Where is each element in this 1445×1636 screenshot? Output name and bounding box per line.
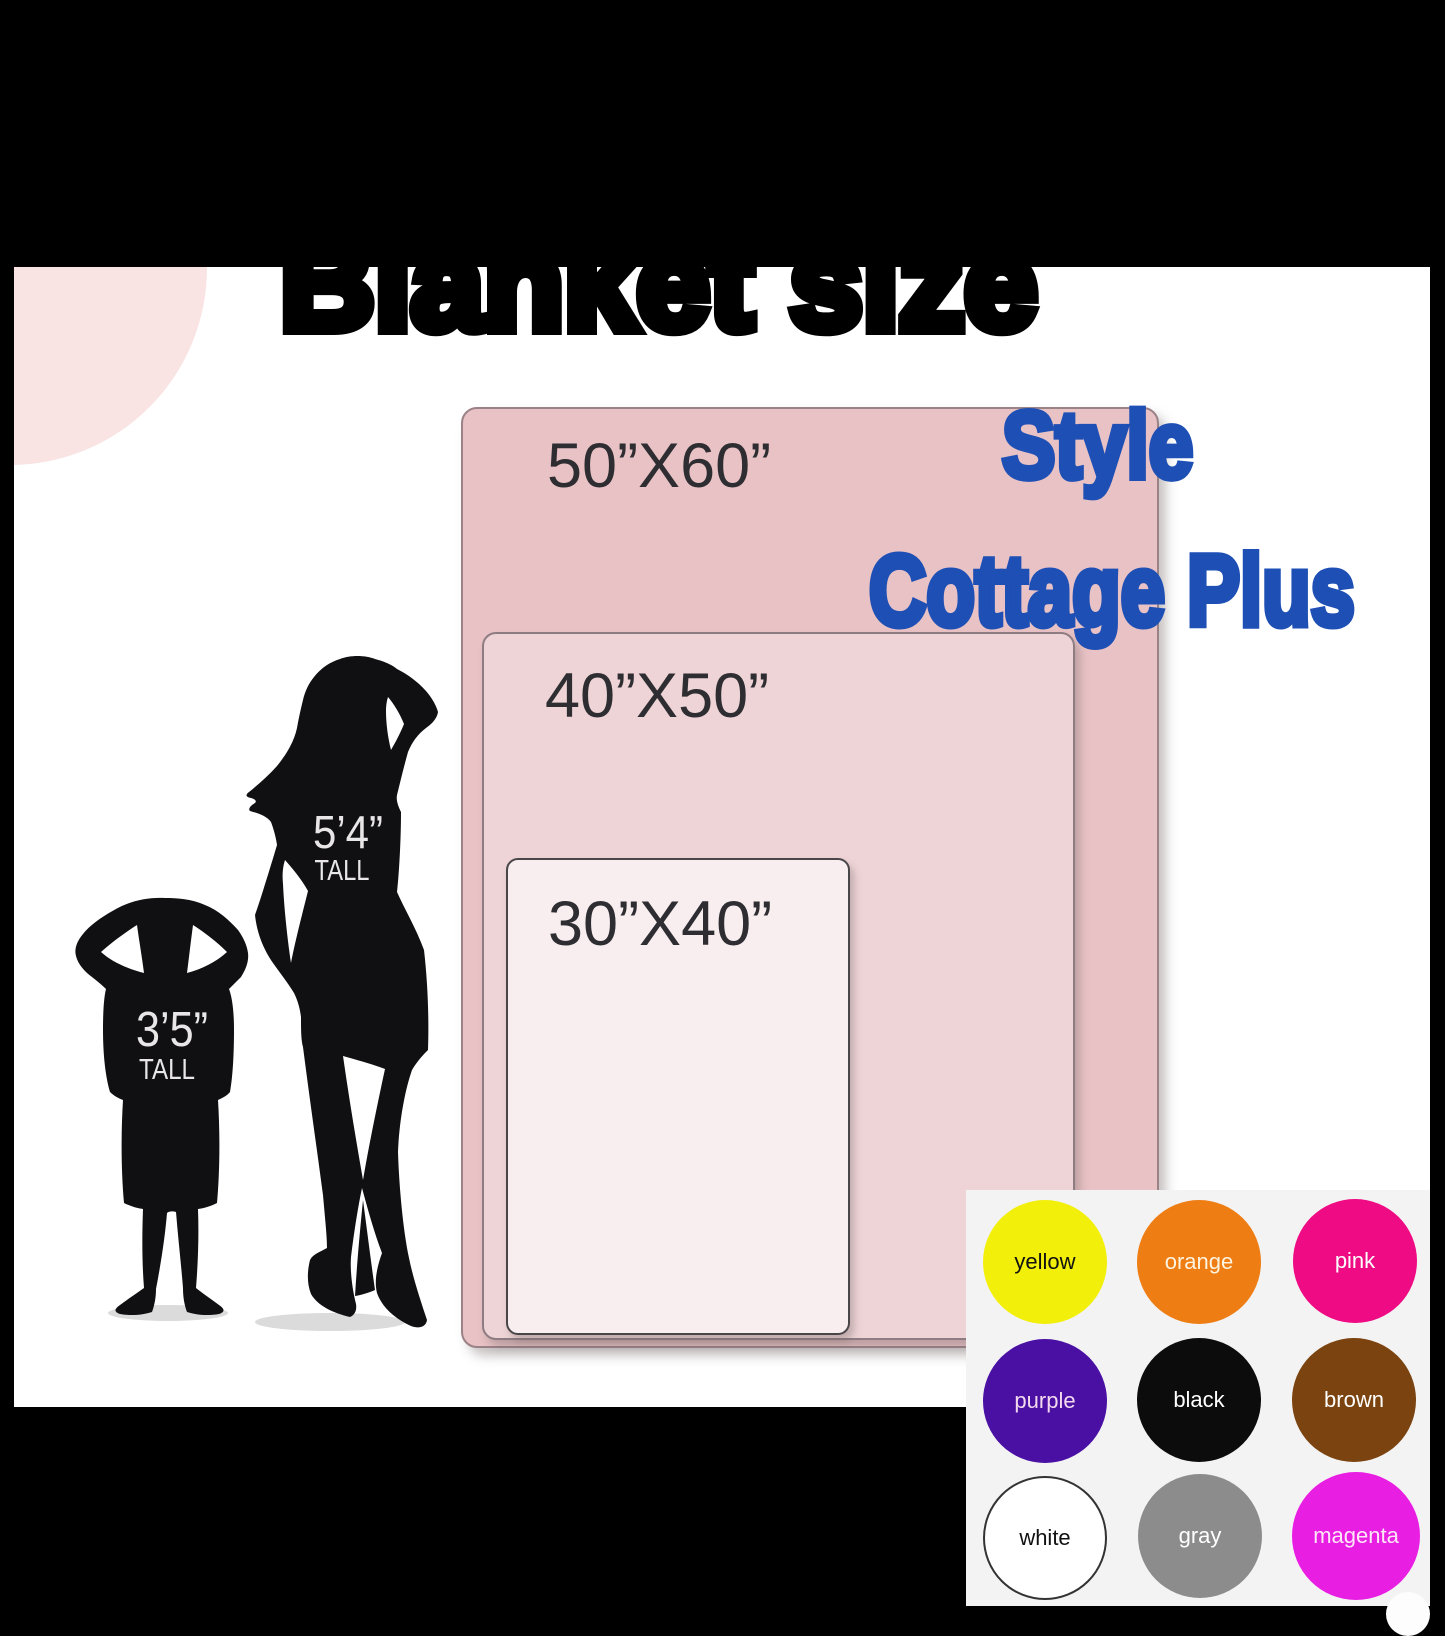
svg-text:TALL: TALL bbox=[139, 1054, 195, 1086]
svg-text:5’4”: 5’4” bbox=[313, 806, 383, 858]
svg-text:TALL: TALL bbox=[315, 855, 370, 887]
svg-text:3’5”: 3’5” bbox=[136, 1003, 208, 1057]
